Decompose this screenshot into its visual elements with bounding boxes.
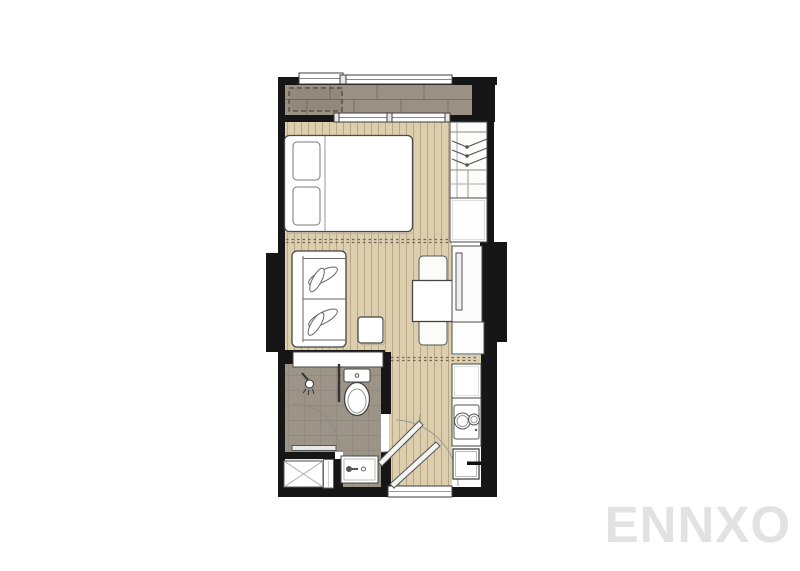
side-table [358, 317, 384, 345]
tv-console [452, 246, 482, 322]
pillow-bottom [293, 187, 320, 225]
entrance-threshold [388, 486, 452, 497]
floor-plan-drawing [0, 0, 800, 571]
dining-chair-bottom [419, 319, 447, 345]
kitchen-cabinet [452, 364, 481, 398]
window-bedroom [334, 113, 450, 122]
wall-right-lower [481, 342, 497, 497]
column-left [266, 253, 285, 352]
storage-cabinet [450, 198, 487, 242]
fridge-handle [467, 462, 481, 466]
window-balcony-left [299, 73, 343, 84]
refrigerator [453, 449, 481, 479]
washing-machine [284, 460, 334, 489]
wall-balcony-right [472, 77, 495, 122]
dining-chair-top [419, 256, 447, 283]
dining-table [413, 281, 454, 322]
floor-plan-page: ENNXO [0, 0, 800, 571]
kitchenette [452, 364, 481, 479]
double-bed [285, 136, 413, 234]
ennxo-watermark: ENNXO [605, 499, 791, 550]
wall-laundry-top [278, 452, 335, 459]
bathroom-sink [341, 456, 378, 483]
sofa-two-seat [292, 251, 346, 347]
sideboard [452, 322, 484, 354]
wall-right-upper [487, 122, 494, 242]
wardrobe-with-hangers [450, 122, 487, 198]
two-burner-stove [452, 398, 481, 446]
tv-panel [456, 253, 462, 310]
pillow-top [293, 142, 320, 180]
shower-door-leaf [292, 446, 336, 451]
window-balcony-main [340, 75, 452, 84]
toilet [344, 369, 370, 416]
ac-unit-pad [289, 88, 342, 111]
